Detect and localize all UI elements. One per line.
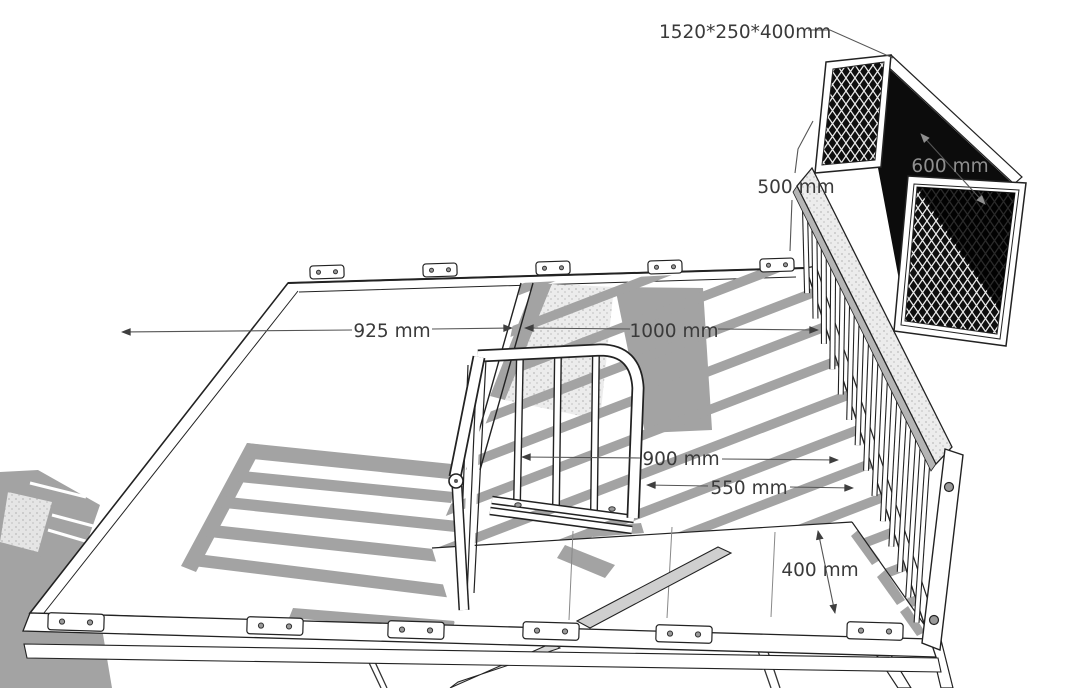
bracket-screw-hole <box>446 268 450 272</box>
bracket-screw-hole <box>258 623 263 628</box>
dim-label-600: 600 mm <box>911 156 988 177</box>
bracket-screw-hole <box>429 268 433 272</box>
bracket-screw-hole <box>559 266 563 270</box>
gate-screw <box>609 507 615 512</box>
bracket-screw-hole <box>858 628 863 633</box>
post-bolt-hole <box>945 483 954 492</box>
bracket-screw-hole <box>766 263 770 267</box>
bracket-plate <box>247 617 303 636</box>
bracket-screw-hole <box>654 265 658 269</box>
bracket-screw-hole <box>427 628 432 633</box>
mounting-bracket <box>847 622 903 641</box>
bracket-screw-hole <box>87 620 92 625</box>
bracket-screw-hole <box>667 631 672 636</box>
bracket-screw-hole <box>886 629 891 634</box>
post-bolt-hole <box>930 616 939 625</box>
bracket-plate <box>648 260 682 274</box>
mounting-bracket <box>48 613 104 632</box>
bracket-screw-hole <box>59 619 64 624</box>
bracket-plate <box>523 622 579 641</box>
storage-basket <box>815 55 1026 346</box>
mounting-bracket <box>388 621 444 640</box>
mounting-bracket <box>536 261 570 275</box>
bracket-screw-hole <box>534 628 539 633</box>
dim-label-900: 900 mm <box>642 449 719 470</box>
mounting-bracket <box>648 260 682 274</box>
dim-label-1000: 1000 mm <box>629 321 718 342</box>
bracket-screw-hole <box>695 632 700 637</box>
mounting-bracket <box>760 258 794 272</box>
gate-screw <box>515 503 521 508</box>
bracket-plate <box>656 625 712 644</box>
bracket-screw-hole <box>671 265 675 269</box>
bracket-plate <box>760 258 794 272</box>
bracket-plate <box>847 622 903 641</box>
bracket-screw-hole <box>316 270 320 274</box>
bracket-screw-hole <box>399 627 404 632</box>
dim-label-925: 925 mm <box>353 321 430 342</box>
technical-drawing: 1520*250*400mm 500 mm 600 mm 925 mm 1000… <box>0 0 1080 688</box>
bracket-plate <box>310 265 344 279</box>
mounting-bracket <box>247 617 303 636</box>
bracket-plate <box>536 261 570 275</box>
mounting-bracket <box>523 622 579 641</box>
bracket-plate <box>423 263 457 277</box>
dim-label-400: 400 mm <box>781 560 858 581</box>
bracket-plate <box>48 613 104 632</box>
mounting-bracket <box>656 625 712 644</box>
bracket-screw-hole <box>783 263 787 267</box>
bracket-screw-hole <box>562 629 567 634</box>
gate-hinge-pin <box>454 479 458 483</box>
mounting-bracket <box>310 265 344 279</box>
bracket-screw-hole <box>333 270 337 274</box>
bracket-screw-hole <box>542 266 546 270</box>
bracket-plate <box>388 621 444 640</box>
dim-label-500: 500 mm <box>757 177 834 198</box>
dim-label-550: 550 mm <box>710 478 787 499</box>
bracket-screw-hole <box>286 624 291 629</box>
mounting-bracket <box>423 263 457 277</box>
dim-label-basket-size: 1520*250*400mm <box>659 22 831 43</box>
